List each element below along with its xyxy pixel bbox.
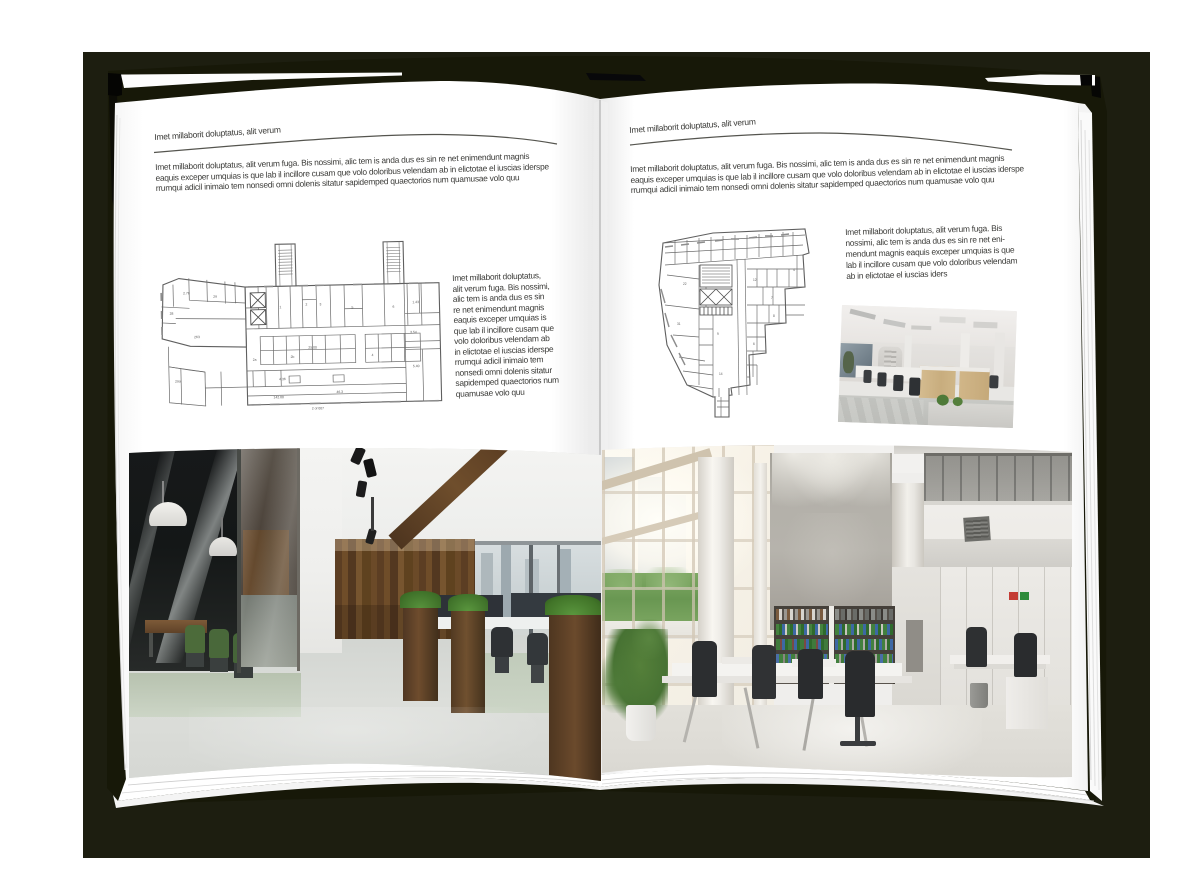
svg-text:2b: 2b [291,355,295,359]
svg-text:3.54: 3.54 [410,330,417,334]
svg-text:22: 22 [683,282,687,286]
svg-text:29: 29 [213,295,217,299]
svg-text:1: 1 [279,305,281,309]
svg-text:25.00: 25.00 [308,345,317,349]
svg-text:28: 28 [170,312,174,316]
svg-text:3: 3 [319,302,321,306]
svg-text:2a: 2a [253,358,257,362]
svg-text:4.36: 4.36 [279,377,286,381]
svg-text:4: 4 [793,268,795,272]
svg-text:1.43: 1.43 [412,300,419,304]
svg-text:2 of 007: 2 of 007 [312,406,324,410]
svg-text:46.3: 46.3 [336,390,343,394]
svg-text:5.40: 5.40 [413,364,420,368]
svg-text:7: 7 [771,296,773,300]
svg-text:31: 31 [677,322,681,326]
svg-text:5: 5 [351,306,353,310]
svg-text:14: 14 [719,372,723,376]
svg-text:6: 6 [753,342,755,346]
svg-text:8: 8 [773,314,775,318]
svg-text:12: 12 [753,278,757,282]
svg-text:29a: 29a [175,380,181,384]
svg-text:142.00: 142.00 [273,395,284,399]
svg-text:2: 2 [305,303,307,307]
svg-text:6: 6 [392,305,394,309]
svg-text:2.78: 2.78 [183,291,190,295]
svg-text:9: 9 [717,332,719,336]
svg-text:4: 4 [372,353,374,357]
svg-text:263: 263 [194,335,200,339]
